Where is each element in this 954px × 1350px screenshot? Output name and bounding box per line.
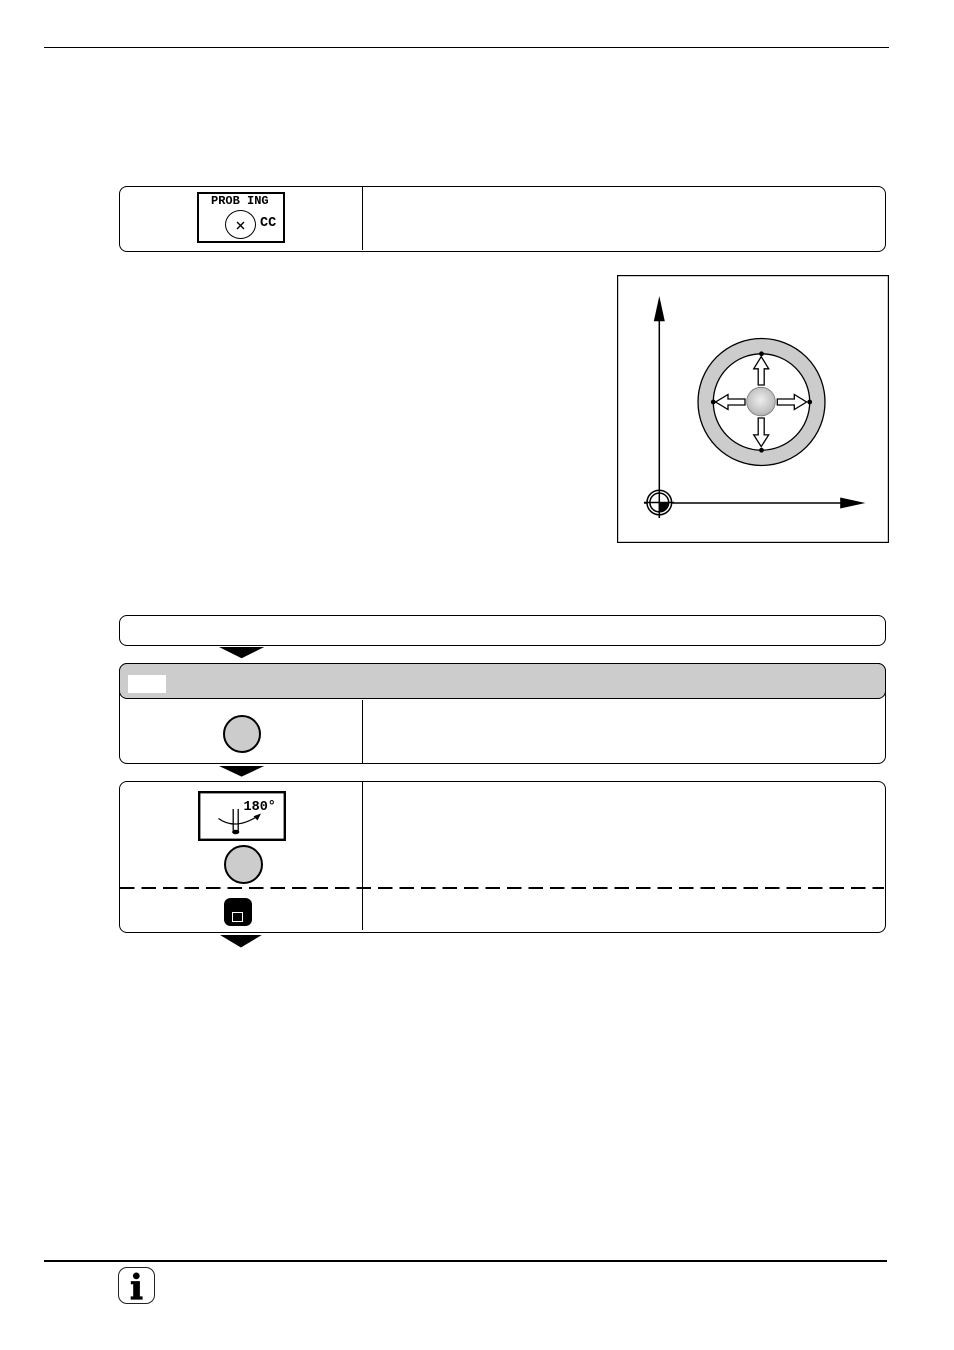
svg-text:180°: 180° [243, 799, 275, 814]
